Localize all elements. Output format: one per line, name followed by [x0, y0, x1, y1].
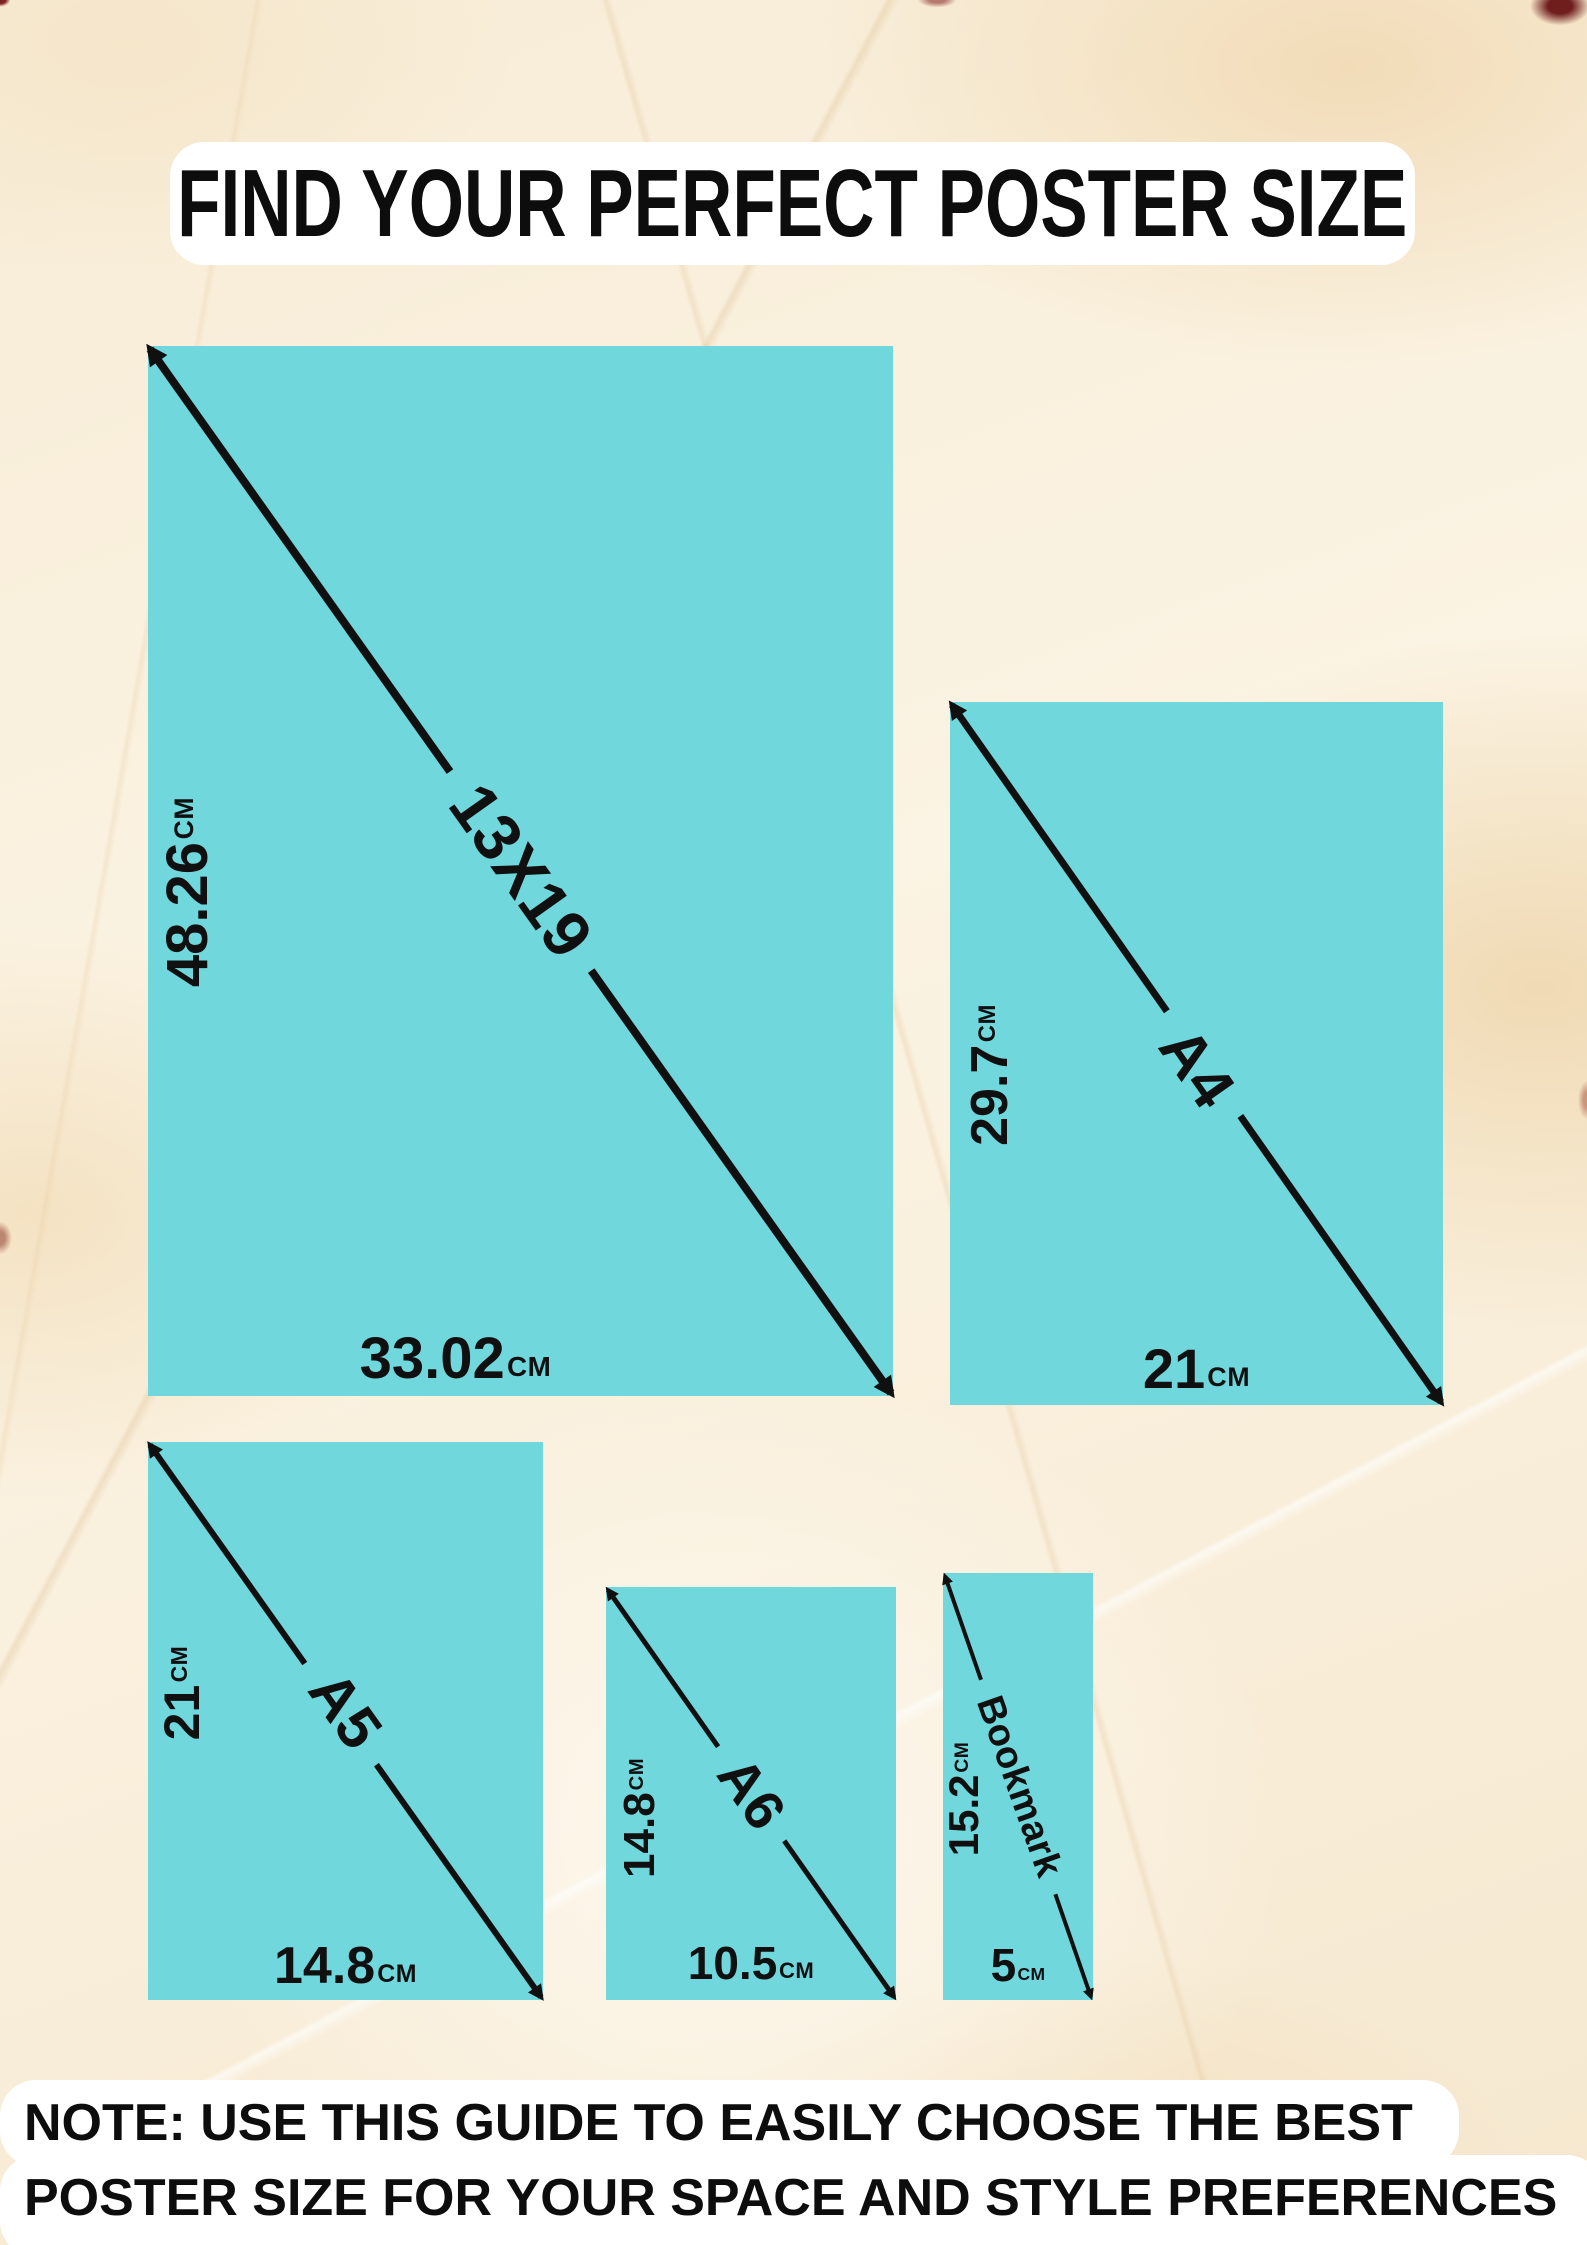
width-dimension-label: 10.5CM	[688, 1940, 815, 1986]
unit-cm: CM	[974, 1004, 1001, 1042]
unit-cm: CM	[626, 1758, 648, 1790]
width-dimension-label: 21CM	[1143, 1341, 1250, 1397]
unit-cm: CM	[377, 1960, 417, 1988]
page-title: FIND YOUR PERFECT POSTER SIZE	[177, 149, 1407, 259]
unit-cm: CM	[952, 1742, 973, 1773]
footer-note: NOTE: USE THIS GUIDE TO EASILY CHOOSE TH…	[0, 2080, 1587, 2245]
height-dimension-label: 29.7CM	[964, 1004, 1016, 1146]
unit-cm: CM	[507, 1351, 551, 1382]
poster-size-guide: FIND YOUR PERFECT POSTER SIZE 48.26CM 13…	[0, 0, 1587, 2245]
poster-rect-a5: 21CM A5 14.8CM	[148, 1442, 543, 2000]
unit-cm: CM	[779, 1958, 814, 1983]
unit-cm: CM	[1018, 1964, 1046, 1984]
unit-cm: CM	[1207, 1362, 1250, 1392]
title-banner: FIND YOUR PERFECT POSTER SIZE	[170, 142, 1415, 265]
height-dimension-label: 15.2CM	[943, 1742, 985, 1856]
height-dimension-label: 48.26CM	[159, 797, 217, 987]
unit-cm: CM	[166, 1646, 192, 1683]
width-dimension-label: 14.8CM	[274, 1940, 417, 1992]
height-dimension-label: 21CM	[157, 1646, 207, 1741]
poster-rect-bookmark: 15.2CM Bookmark 5CM	[943, 1573, 1093, 2000]
poster-rect-a6: 14.8CM A6 10.5CM	[606, 1587, 896, 2000]
width-dimension-label: 33.02CM	[360, 1330, 552, 1388]
poster-rect-a4: 29.7CM A4 21CM	[950, 702, 1443, 1405]
height-dimension-label: 14.8CM	[618, 1758, 662, 1878]
poster-rect-13x19: 48.26CM 13X19 33.02CM	[148, 346, 893, 1396]
unit-cm: CM	[169, 797, 199, 840]
footer-note-line-2: POSTER SIZE FOR YOUR SPACE AND STYLE PRE…	[0, 2155, 1587, 2245]
footer-note-line-1: NOTE: USE THIS GUIDE TO EASILY CHOOSE TH…	[0, 2080, 1459, 2167]
width-dimension-label: 5CM	[991, 1942, 1046, 1988]
